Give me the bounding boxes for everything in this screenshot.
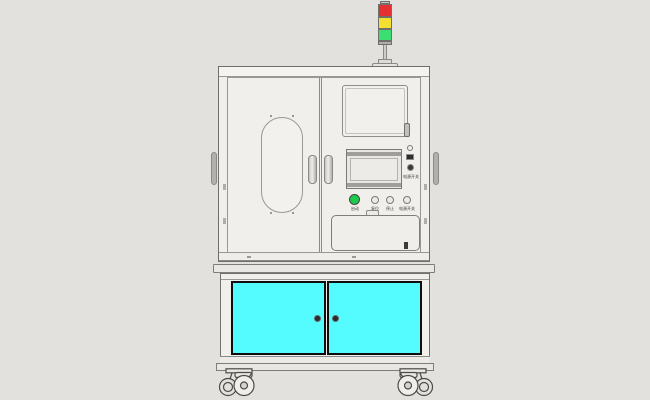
window-screw-icon	[292, 115, 294, 117]
machine-render: 电源开关 启动 复位 停止 电源开关	[0, 0, 650, 400]
window-handle	[404, 123, 410, 137]
tower-pole	[383, 44, 387, 60]
left-door-knob	[314, 315, 321, 322]
window-screw-icon	[270, 115, 272, 117]
tower-red-light-icon	[378, 4, 392, 17]
left-door-window	[261, 117, 303, 213]
right-caster-wheel	[390, 368, 434, 398]
right-door-handle	[324, 155, 333, 184]
right-upper-window-inner	[345, 88, 405, 134]
power-button-label: 电源开关	[395, 206, 419, 211]
tower-green-light-icon	[378, 29, 392, 41]
hinge-icon	[424, 184, 427, 190]
power-button	[403, 196, 411, 204]
indicator-lamp-icon	[407, 145, 413, 151]
lower-right-door	[327, 281, 422, 355]
tower-cap	[380, 1, 390, 4]
right-door-knob	[332, 315, 339, 322]
left-caster-wheel	[218, 368, 262, 398]
start-button-label: 启动	[346, 206, 364, 211]
stop-button	[386, 196, 394, 204]
tower-base	[378, 41, 392, 45]
lower-left-door	[231, 281, 326, 355]
upper-cabinet-top-rail	[219, 67, 429, 77]
left-door-handle	[308, 155, 317, 184]
touchscreen-display	[350, 158, 398, 181]
window-screw-icon	[270, 212, 272, 214]
touchscreen-top-bezel	[347, 152, 401, 156]
usb-port-icon	[406, 154, 414, 160]
right-side-handle	[433, 152, 439, 185]
touchscreen-bottom-bezel	[347, 183, 401, 187]
door-divider	[319, 78, 322, 257]
start-button	[349, 194, 360, 205]
rail-mark-icon	[352, 256, 356, 258]
window-screw-icon	[292, 212, 294, 214]
io-label: 电源开关	[399, 174, 423, 179]
reset-button	[371, 196, 379, 204]
hinge-icon	[223, 218, 226, 224]
tabletop-beam	[213, 264, 435, 273]
tower-yellow-light-icon	[378, 17, 392, 29]
rail-mark-icon	[247, 256, 251, 258]
hinge-icon	[223, 184, 226, 190]
lower-cabinet-top-rail	[221, 274, 429, 280]
left-side-handle	[211, 152, 217, 185]
power-switch-icon	[407, 164, 414, 171]
drawer-connector-icon	[404, 242, 408, 249]
hinge-icon	[424, 218, 427, 224]
